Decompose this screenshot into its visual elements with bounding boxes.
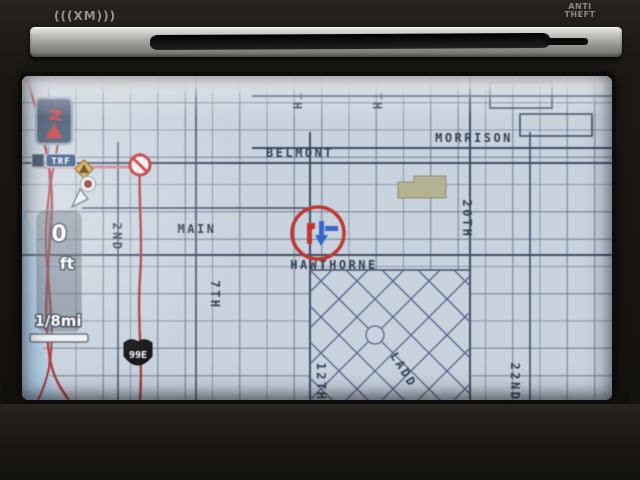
map-overlay: BELMONT MORRISON MAIN HAWTHORNE 2ND 7TH … [22,76,612,400]
cd-slot-opening[interactable] [150,33,550,50]
street-label-hawthorne: HAWTHORNE [290,258,378,272]
cd-slot-notch [546,38,588,45]
anti-theft-label: ANTI THEFT [548,3,612,19]
bottom-bezel [0,404,640,480]
street-label-12th: 12TH [314,363,328,400]
distance-value: 0 [51,222,66,247]
diagonal-district-bg [310,270,470,400]
street-label-belmont: BELMONT [266,146,334,160]
scale-bar [30,334,88,342]
highway-shield-label: 99E [129,350,147,361]
head-unit: (((XM))) ANTI THEFT [0,0,640,480]
street-label-22nd: 22ND [508,363,522,400]
cd-slot-bezel [30,27,622,57]
compass-north-letter: N [45,108,65,123]
street-label-partial-right: TH [370,92,384,111]
map-layers: BELMONT MORRISON MAIN HAWTHORNE 2ND 7TH … [22,76,612,400]
nav-screen[interactable]: BELMONT MORRISON MAIN HAWTHORNE 2ND 7TH … [22,76,612,400]
position-marker [292,207,344,259]
marker-red-glyph [307,223,315,244]
street-label-2nd: 2ND [110,222,124,251]
distance-unit: ft [60,254,75,273]
traffic-mini-icon [32,154,44,167]
scale-label: 1/8mi [34,312,81,330]
street-label-main: MAIN [178,222,217,236]
compass-icon: N [36,98,72,144]
traffic-badge: TRF [32,154,76,167]
xm-radio-label: (((XM))) [54,9,116,23]
street-label-20th: 20TH [460,200,474,239]
map-scale: 1/8mi [30,312,88,342]
highway-shield: 99E [124,340,152,365]
traffic-badge-label: TRF [51,157,70,167]
no-entry-icon [130,155,150,175]
park-block [398,176,446,198]
street-label-7th: 7TH [208,280,222,309]
anti-theft-line2: THEFT [548,11,612,19]
marker-blue-arrow-icon [315,235,328,246]
street-label-partial-left: TH [290,92,304,111]
poi-pointer-icon [72,177,96,208]
street-label-morrison: MORRISON [435,131,513,145]
